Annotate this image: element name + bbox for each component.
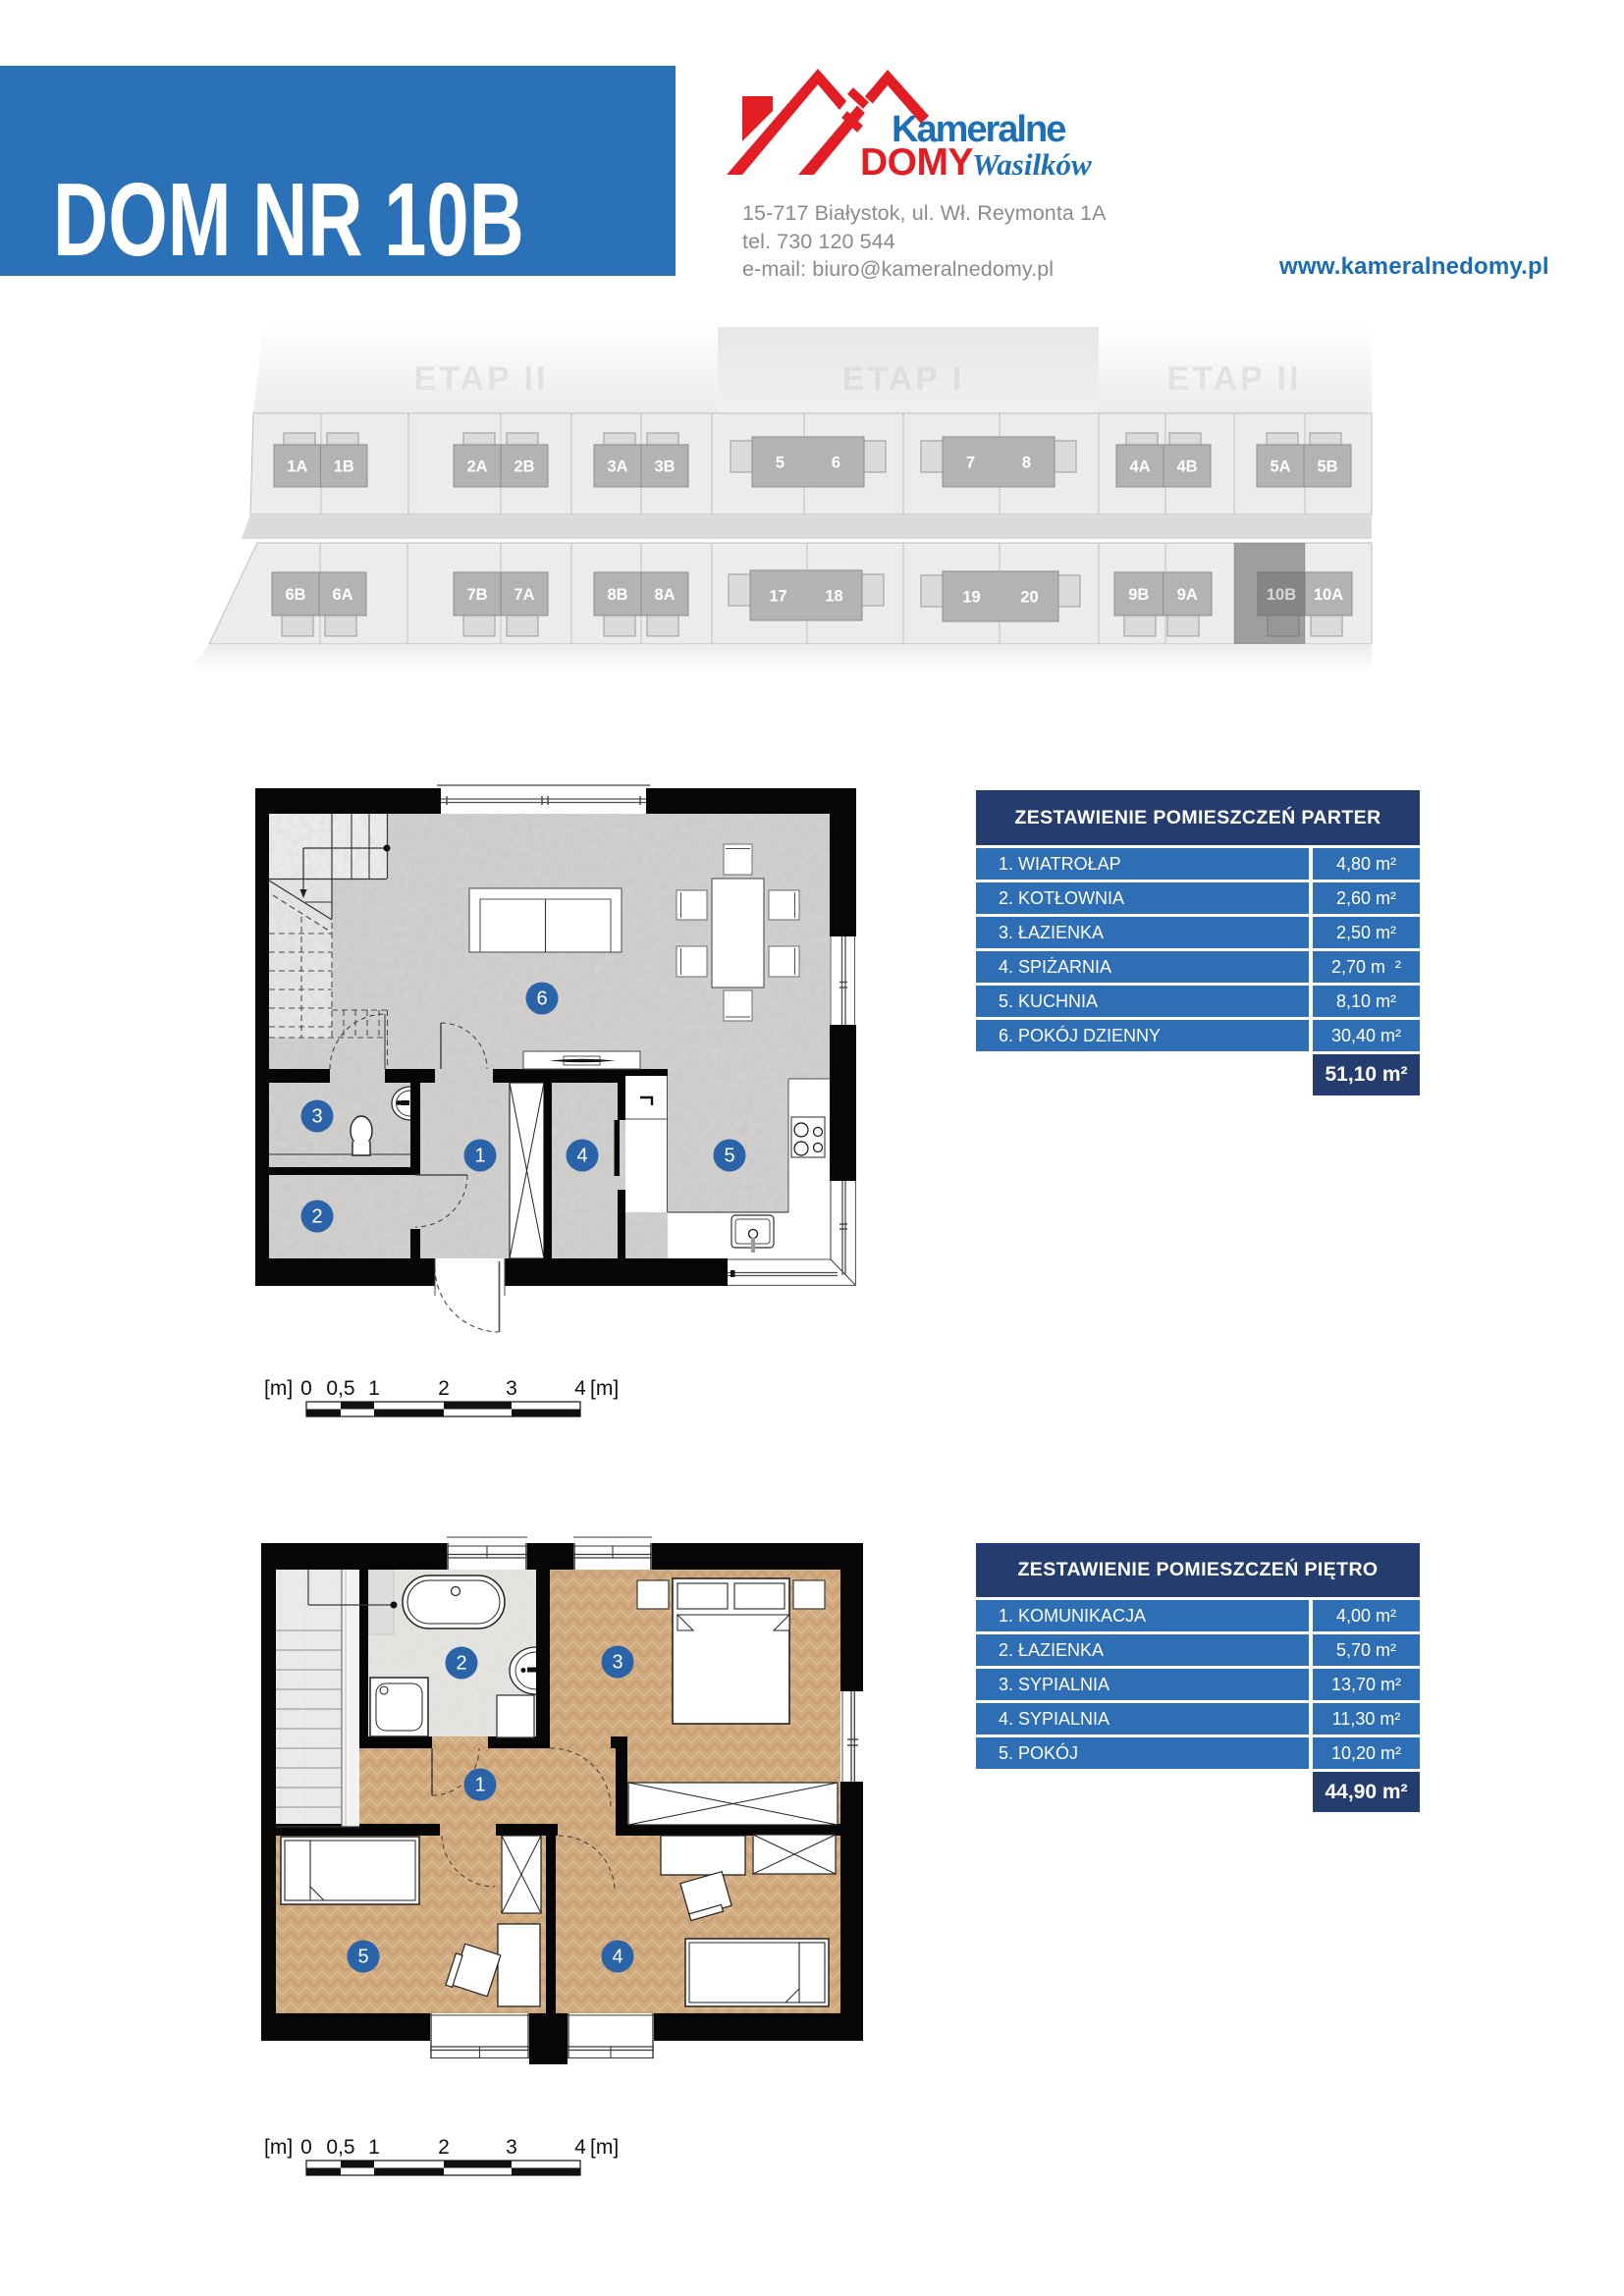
svg-text:5B: 5B bbox=[1317, 458, 1337, 476]
svg-text:[m]: [m] bbox=[590, 2136, 619, 2159]
svg-text:17: 17 bbox=[769, 588, 786, 606]
svg-text:4B: 4B bbox=[1176, 458, 1197, 476]
svg-text:6A: 6A bbox=[332, 586, 352, 604]
svg-text:6B: 6B bbox=[285, 586, 305, 604]
svg-text:2B: 2B bbox=[514, 458, 534, 476]
svg-text:ETAP II: ETAP II bbox=[414, 360, 549, 398]
svg-text:ETAP II: ETAP II bbox=[1167, 360, 1302, 398]
svg-text:4: 4 bbox=[576, 1146, 587, 1167]
svg-text:3A: 3A bbox=[607, 458, 627, 476]
svg-text:5: 5 bbox=[724, 1146, 734, 1167]
svg-text:7A: 7A bbox=[514, 586, 534, 604]
svg-text:9A: 9A bbox=[1177, 586, 1198, 604]
svg-text:4: 4 bbox=[612, 1947, 623, 1968]
svg-text:8B: 8B bbox=[607, 586, 627, 604]
svg-text:1A: 1A bbox=[287, 458, 307, 476]
svg-text:5: 5 bbox=[357, 1947, 368, 1968]
svg-text:2: 2 bbox=[311, 1206, 322, 1228]
svg-text:4A: 4A bbox=[1129, 458, 1150, 476]
svg-text:18: 18 bbox=[825, 588, 842, 606]
svg-text:3B: 3B bbox=[654, 458, 675, 476]
svg-text:7B: 7B bbox=[466, 586, 487, 604]
svg-text:1: 1 bbox=[474, 1146, 485, 1167]
svg-text:[m]: [m] bbox=[264, 2136, 293, 2159]
svg-text:10A: 10A bbox=[1314, 586, 1343, 604]
svg-text:6: 6 bbox=[832, 454, 840, 472]
svg-text:20: 20 bbox=[1020, 589, 1038, 607]
svg-text:0: 0 bbox=[300, 2136, 312, 2159]
svg-text:2: 2 bbox=[438, 1377, 450, 1400]
svg-text:3: 3 bbox=[612, 1652, 623, 1674]
svg-text:8: 8 bbox=[1022, 454, 1031, 472]
svg-text:7: 7 bbox=[966, 454, 975, 472]
svg-text:2A: 2A bbox=[466, 458, 487, 476]
svg-text:10B: 10B bbox=[1267, 586, 1296, 604]
svg-text:0,5: 0,5 bbox=[326, 1377, 354, 1400]
svg-text:3: 3 bbox=[311, 1106, 322, 1128]
svg-text:1B: 1B bbox=[334, 458, 354, 476]
svg-text:[m]: [m] bbox=[590, 1377, 619, 1400]
svg-text:[m]: [m] bbox=[264, 1377, 293, 1400]
svg-text:1: 1 bbox=[368, 1377, 380, 1400]
svg-text:3: 3 bbox=[506, 1377, 517, 1400]
svg-text:5A: 5A bbox=[1270, 458, 1290, 476]
svg-text:8A: 8A bbox=[654, 586, 675, 604]
svg-text:1: 1 bbox=[474, 1775, 485, 1796]
svg-text:3: 3 bbox=[506, 2136, 517, 2159]
svg-text:ETAP I: ETAP I bbox=[842, 360, 964, 398]
svg-text:19: 19 bbox=[962, 589, 980, 607]
svg-text:1: 1 bbox=[368, 2136, 380, 2159]
svg-text:4: 4 bbox=[574, 2136, 586, 2159]
svg-text:0: 0 bbox=[300, 1377, 312, 1400]
svg-text:6: 6 bbox=[536, 988, 547, 1010]
svg-text:2: 2 bbox=[438, 2136, 450, 2159]
svg-text:9B: 9B bbox=[1128, 586, 1149, 604]
svg-text:0,5: 0,5 bbox=[326, 2136, 354, 2159]
svg-text:2: 2 bbox=[456, 1653, 466, 1675]
svg-text:4: 4 bbox=[574, 1377, 586, 1400]
svg-text:5: 5 bbox=[776, 454, 785, 472]
